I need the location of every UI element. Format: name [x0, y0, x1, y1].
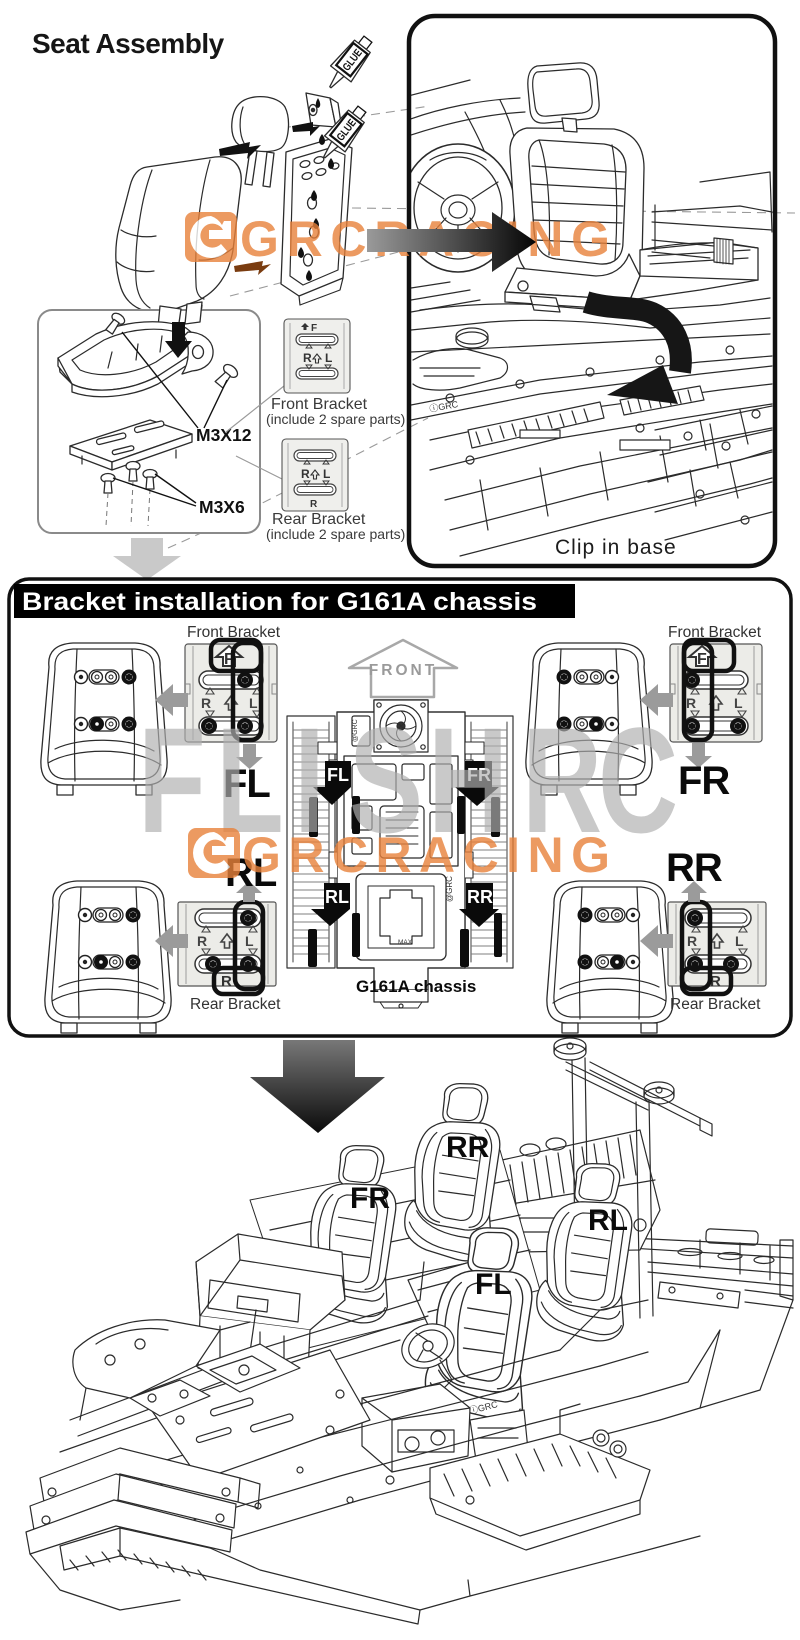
svg-text:R: R [303, 351, 312, 365]
svg-text:R: R [221, 973, 232, 990]
svg-text:R: R [310, 499, 318, 510]
svg-text:Front Bracket: Front Bracket [668, 624, 762, 641]
svg-text:M3X12: M3X12 [196, 425, 252, 445]
svg-text:RR: RR [446, 1131, 490, 1164]
svg-text:R: R [687, 933, 697, 949]
svg-text:Rear Bracket: Rear Bracket [670, 996, 761, 1013]
svg-text:(include 2 spare parts): (include 2 spare parts) [266, 526, 405, 542]
svg-text:M3X6: M3X6 [199, 497, 245, 517]
svg-text:GRCRACING: GRCRACING [242, 827, 612, 883]
svg-text:Clip in base: Clip in base [555, 536, 677, 559]
svg-text:FR: FR [678, 759, 730, 803]
svg-text:RL: RL [588, 1204, 628, 1237]
svg-text:(include 2 spare parts): (include 2 spare parts) [266, 411, 405, 427]
svg-text:L: L [323, 467, 330, 481]
svg-text:FRONT: FRONT [369, 662, 437, 679]
svg-text:L: L [325, 351, 332, 365]
svg-text:L: L [734, 695, 743, 711]
svg-text:MAX: MAX [398, 939, 413, 946]
svg-text:F: F [697, 651, 707, 668]
svg-text:Seat Assembly: Seat Assembly [32, 28, 225, 59]
svg-text:FL: FL [327, 765, 349, 785]
svg-text:Rear Bracket: Rear Bracket [190, 996, 281, 1013]
svg-text:G161A chassis: G161A chassis [356, 977, 476, 996]
svg-text:R: R [301, 467, 310, 481]
svg-text:FL: FL [475, 1268, 512, 1301]
svg-text:F: F [311, 323, 317, 334]
svg-text:L: L [735, 933, 744, 949]
svg-text:Bracket installation for G161A: Bracket installation for G161A chassis [22, 588, 537, 616]
svg-text:L: L [245, 933, 254, 949]
svg-text:RL: RL [325, 887, 349, 907]
svg-text:Front Bracket: Front Bracket [187, 624, 281, 641]
svg-text:RR: RR [467, 887, 493, 907]
svg-text:R: R [686, 695, 696, 711]
svg-text:R: R [197, 933, 207, 949]
svg-text:FR: FR [350, 1182, 390, 1215]
